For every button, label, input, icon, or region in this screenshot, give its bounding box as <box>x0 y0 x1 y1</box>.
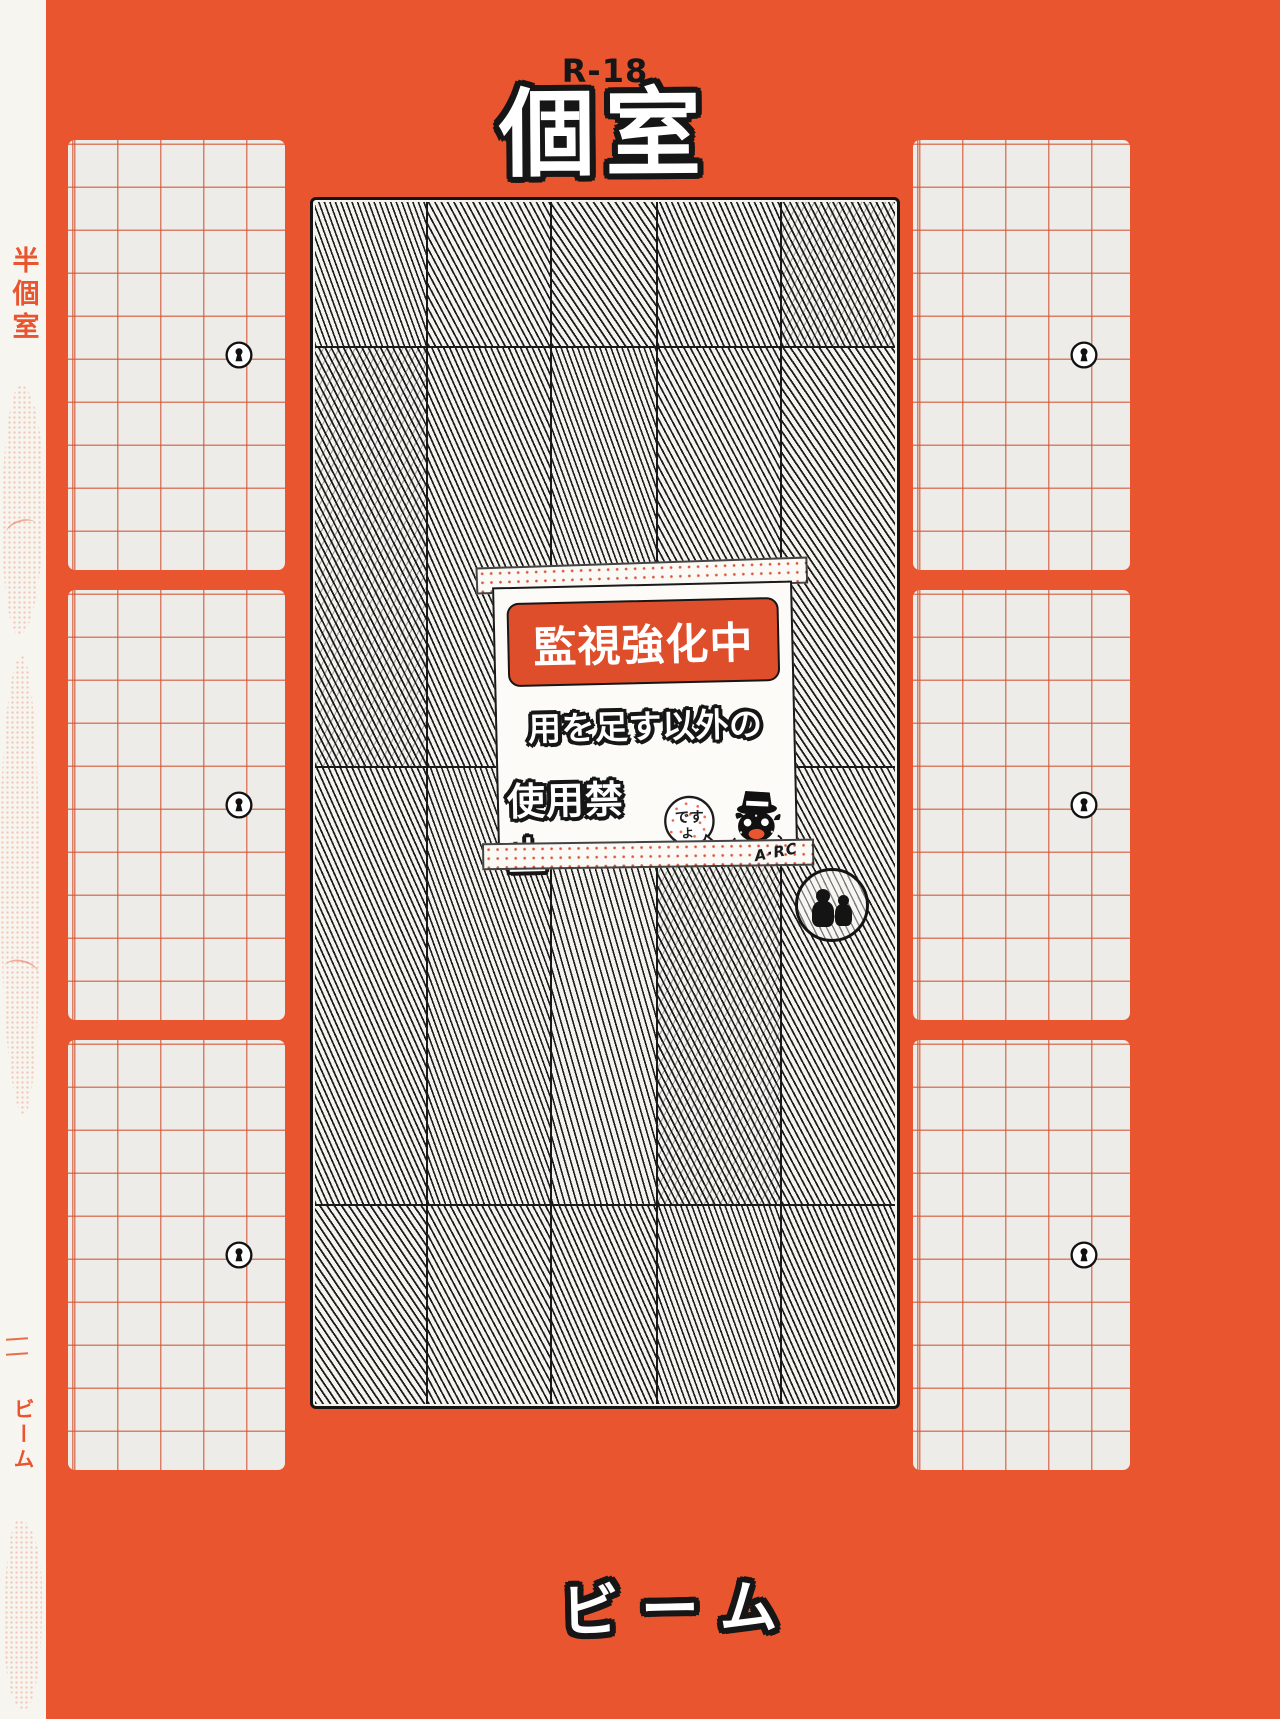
door-panel-section <box>782 202 895 348</box>
cover-page: 半個室 ビーム R-18 個室 <box>0 0 1280 1719</box>
keyhole-icon <box>1070 791 1098 819</box>
spine-strip: 半個室 ビーム <box>0 0 46 1719</box>
faint-illustration <box>4 1520 42 1710</box>
face-text-top: です <box>675 809 704 827</box>
doorknob-figure <box>835 904 852 926</box>
spine-title: 半個室 <box>4 246 43 345</box>
stall-panel-4 <box>913 140 1130 570</box>
stall-panel-5 <box>913 590 1130 1020</box>
stall-panel-1 <box>68 140 285 570</box>
stall-panel-6 <box>913 1040 1130 1470</box>
warning-sign-body: 監視強化中 用を足す以外の 使用禁止 です よ <box>492 581 798 852</box>
door-panel-section <box>315 768 428 1206</box>
artist-signature: A·RC <box>753 839 799 865</box>
door-panel-section <box>315 348 428 768</box>
faint-illustration <box>2 385 44 635</box>
keyhole-icon <box>225 341 253 369</box>
face-text-bottom: よ <box>682 825 695 840</box>
door-panel-section <box>428 1206 552 1404</box>
tape-strip-bottom: A·RC <box>482 839 814 871</box>
sign-banner: 監視強化中 <box>507 597 780 687</box>
door-panel-section <box>315 1206 428 1404</box>
door-panel-section <box>428 202 552 348</box>
keyhole-icon <box>1070 1241 1098 1269</box>
door-panel-section <box>782 1206 895 1404</box>
publisher-logo: ビーム <box>399 1556 961 1652</box>
keyhole-icon <box>225 1241 253 1269</box>
stall-panel-2 <box>68 590 285 1020</box>
doorknob <box>795 868 869 942</box>
door-panel-section <box>658 1206 782 1404</box>
page-title: 個室 <box>310 84 901 184</box>
header: R-18 個室 <box>310 52 900 182</box>
warning-sign: 監視強化中 用を足す以外の 使用禁止 です よ <box>486 559 805 872</box>
door-panel-section <box>552 1206 659 1404</box>
spine-mark-line <box>6 1337 28 1341</box>
keyhole-icon <box>225 791 253 819</box>
stall-panel-3 <box>68 1040 285 1470</box>
door-panel-section <box>552 202 659 348</box>
faint-illustration <box>0 655 40 1115</box>
spine-mark-line <box>6 1352 28 1356</box>
spine-publisher-label: ビーム <box>8 1398 38 1473</box>
door-panel-section <box>658 202 782 348</box>
door-panel-section <box>315 202 428 348</box>
keyhole-icon <box>1070 341 1098 369</box>
doorknob-figure <box>812 901 834 927</box>
sign-line1: 用を足す以外の <box>505 697 786 751</box>
stall-door: 監視強化中 用を足す以外の 使用禁止 です よ <box>310 197 900 1409</box>
spine-marks <box>6 1338 36 1368</box>
